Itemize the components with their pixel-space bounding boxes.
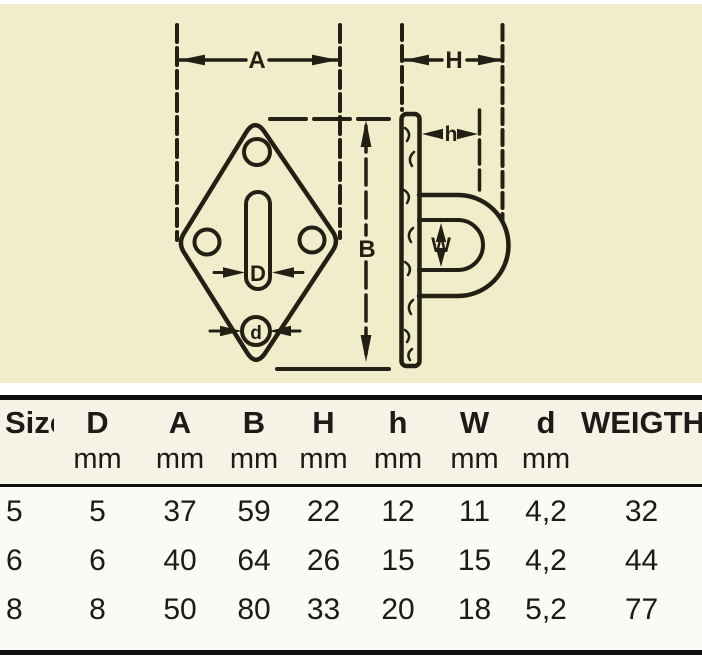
dimension-label-h: h — [445, 123, 458, 146]
col-header-H: H mm — [289, 400, 358, 484]
table-bottom-border — [0, 650, 702, 655]
dimension-label-B: B — [358, 236, 375, 263]
arrow-left-icon — [404, 55, 429, 66]
dimension-label-a: A — [248, 47, 265, 74]
cell-weigth: 77 — [581, 585, 702, 634]
mounting-hole-left — [195, 230, 220, 255]
eye-ring-inner — [419, 220, 483, 270]
cell-A: 40 — [141, 536, 219, 585]
dimension-label-W: W — [431, 234, 451, 257]
arrow-right-icon — [478, 55, 503, 66]
mounting-hole-top — [244, 139, 270, 165]
arrow-right-icon — [312, 55, 338, 66]
dimension-w: W — [431, 223, 451, 267]
col-header-label: d — [511, 400, 581, 444]
cell-weigth: 44 — [581, 536, 702, 585]
col-header-label: Size — [5, 400, 54, 444]
plate-hatching — [404, 128, 414, 360]
cell-B: 59 — [219, 487, 289, 536]
cell-W: 18 — [438, 585, 511, 634]
col-header-unit: mm — [54, 444, 141, 474]
col-header-unit: mm — [511, 444, 581, 474]
arrow-right-icon — [457, 129, 478, 139]
col-header-label: WEIGTH — [581, 400, 702, 444]
col-header-W: W mm — [438, 400, 511, 484]
col-header-size: Size — [0, 400, 54, 484]
cell-weigth: 32 — [581, 487, 702, 536]
col-header-label: W — [438, 400, 511, 444]
arrow-down-icon — [361, 335, 372, 362]
col-header-label: D — [54, 400, 141, 444]
cell-size: 5 — [0, 487, 54, 536]
dimension-d-lower: d — [210, 323, 300, 344]
cell-h: 12 — [358, 487, 438, 536]
cell-B: 80 — [219, 585, 289, 634]
cell-D: 6 — [54, 536, 141, 585]
cell-H: 26 — [289, 536, 358, 585]
cell-A: 37 — [141, 487, 219, 536]
arrow-up-icon — [361, 120, 372, 147]
col-header-unit: mm — [289, 444, 358, 474]
col-header-D: D mm — [54, 400, 141, 484]
cell-d: 4,2 — [511, 536, 581, 585]
col-header-label: B — [219, 400, 289, 444]
cell-D: 5 — [54, 487, 141, 536]
col-header-label: h — [358, 400, 438, 444]
table-bottom-spacer — [0, 634, 702, 650]
col-header-d: d mm — [511, 400, 581, 484]
dimension-label-d: d — [250, 323, 262, 344]
cell-h: 20 — [358, 585, 438, 634]
cell-H: 33 — [289, 585, 358, 634]
col-header-unit: mm — [141, 444, 219, 474]
col-header-label: A — [141, 400, 219, 444]
cell-size: 6 — [0, 536, 54, 585]
cell-size: 8 — [0, 585, 54, 634]
cell-H: 22 — [289, 487, 358, 536]
arrow-right-icon — [223, 267, 245, 278]
arrow-left-icon — [179, 55, 205, 66]
col-header-unit: mm — [358, 444, 438, 474]
dimension-label-H: H — [445, 47, 462, 74]
cell-D: 8 — [54, 585, 141, 634]
catalog-page: { "colors": { "panel_bg": "#f1edcb", "he… — [0, 0, 702, 661]
dimension-label-D: D — [250, 261, 266, 286]
cell-W: 15 — [438, 536, 511, 585]
cell-A: 50 — [141, 585, 219, 634]
col-header-unit: mm — [438, 444, 511, 474]
cell-d: 4,2 — [511, 487, 581, 536]
col-header-unit: mm — [219, 444, 289, 474]
spec-table: Size D mm A mm B mm H mm h mm W mm d mm — [0, 395, 702, 655]
spec-table-grid: Size D mm A mm B mm H mm h mm W mm d mm — [0, 400, 702, 650]
cell-B: 64 — [219, 536, 289, 585]
col-header-h: h mm — [358, 400, 438, 484]
col-header-weigth: WEIGTH — [581, 400, 702, 484]
arrow-left-icon — [422, 129, 443, 139]
dimension-d-upper: D — [214, 261, 303, 286]
arrow-left-icon — [272, 267, 294, 278]
col-header-A: A mm — [141, 400, 219, 484]
col-header-B: B mm — [219, 400, 289, 484]
cell-h: 15 — [358, 536, 438, 585]
col-header-label: H — [289, 400, 358, 444]
dimension-h-lower: h — [422, 110, 480, 190]
cell-W: 11 — [438, 487, 511, 536]
cell-d: 5,2 — [511, 585, 581, 634]
mounting-hole-right — [300, 228, 325, 253]
side-view — [402, 114, 509, 366]
